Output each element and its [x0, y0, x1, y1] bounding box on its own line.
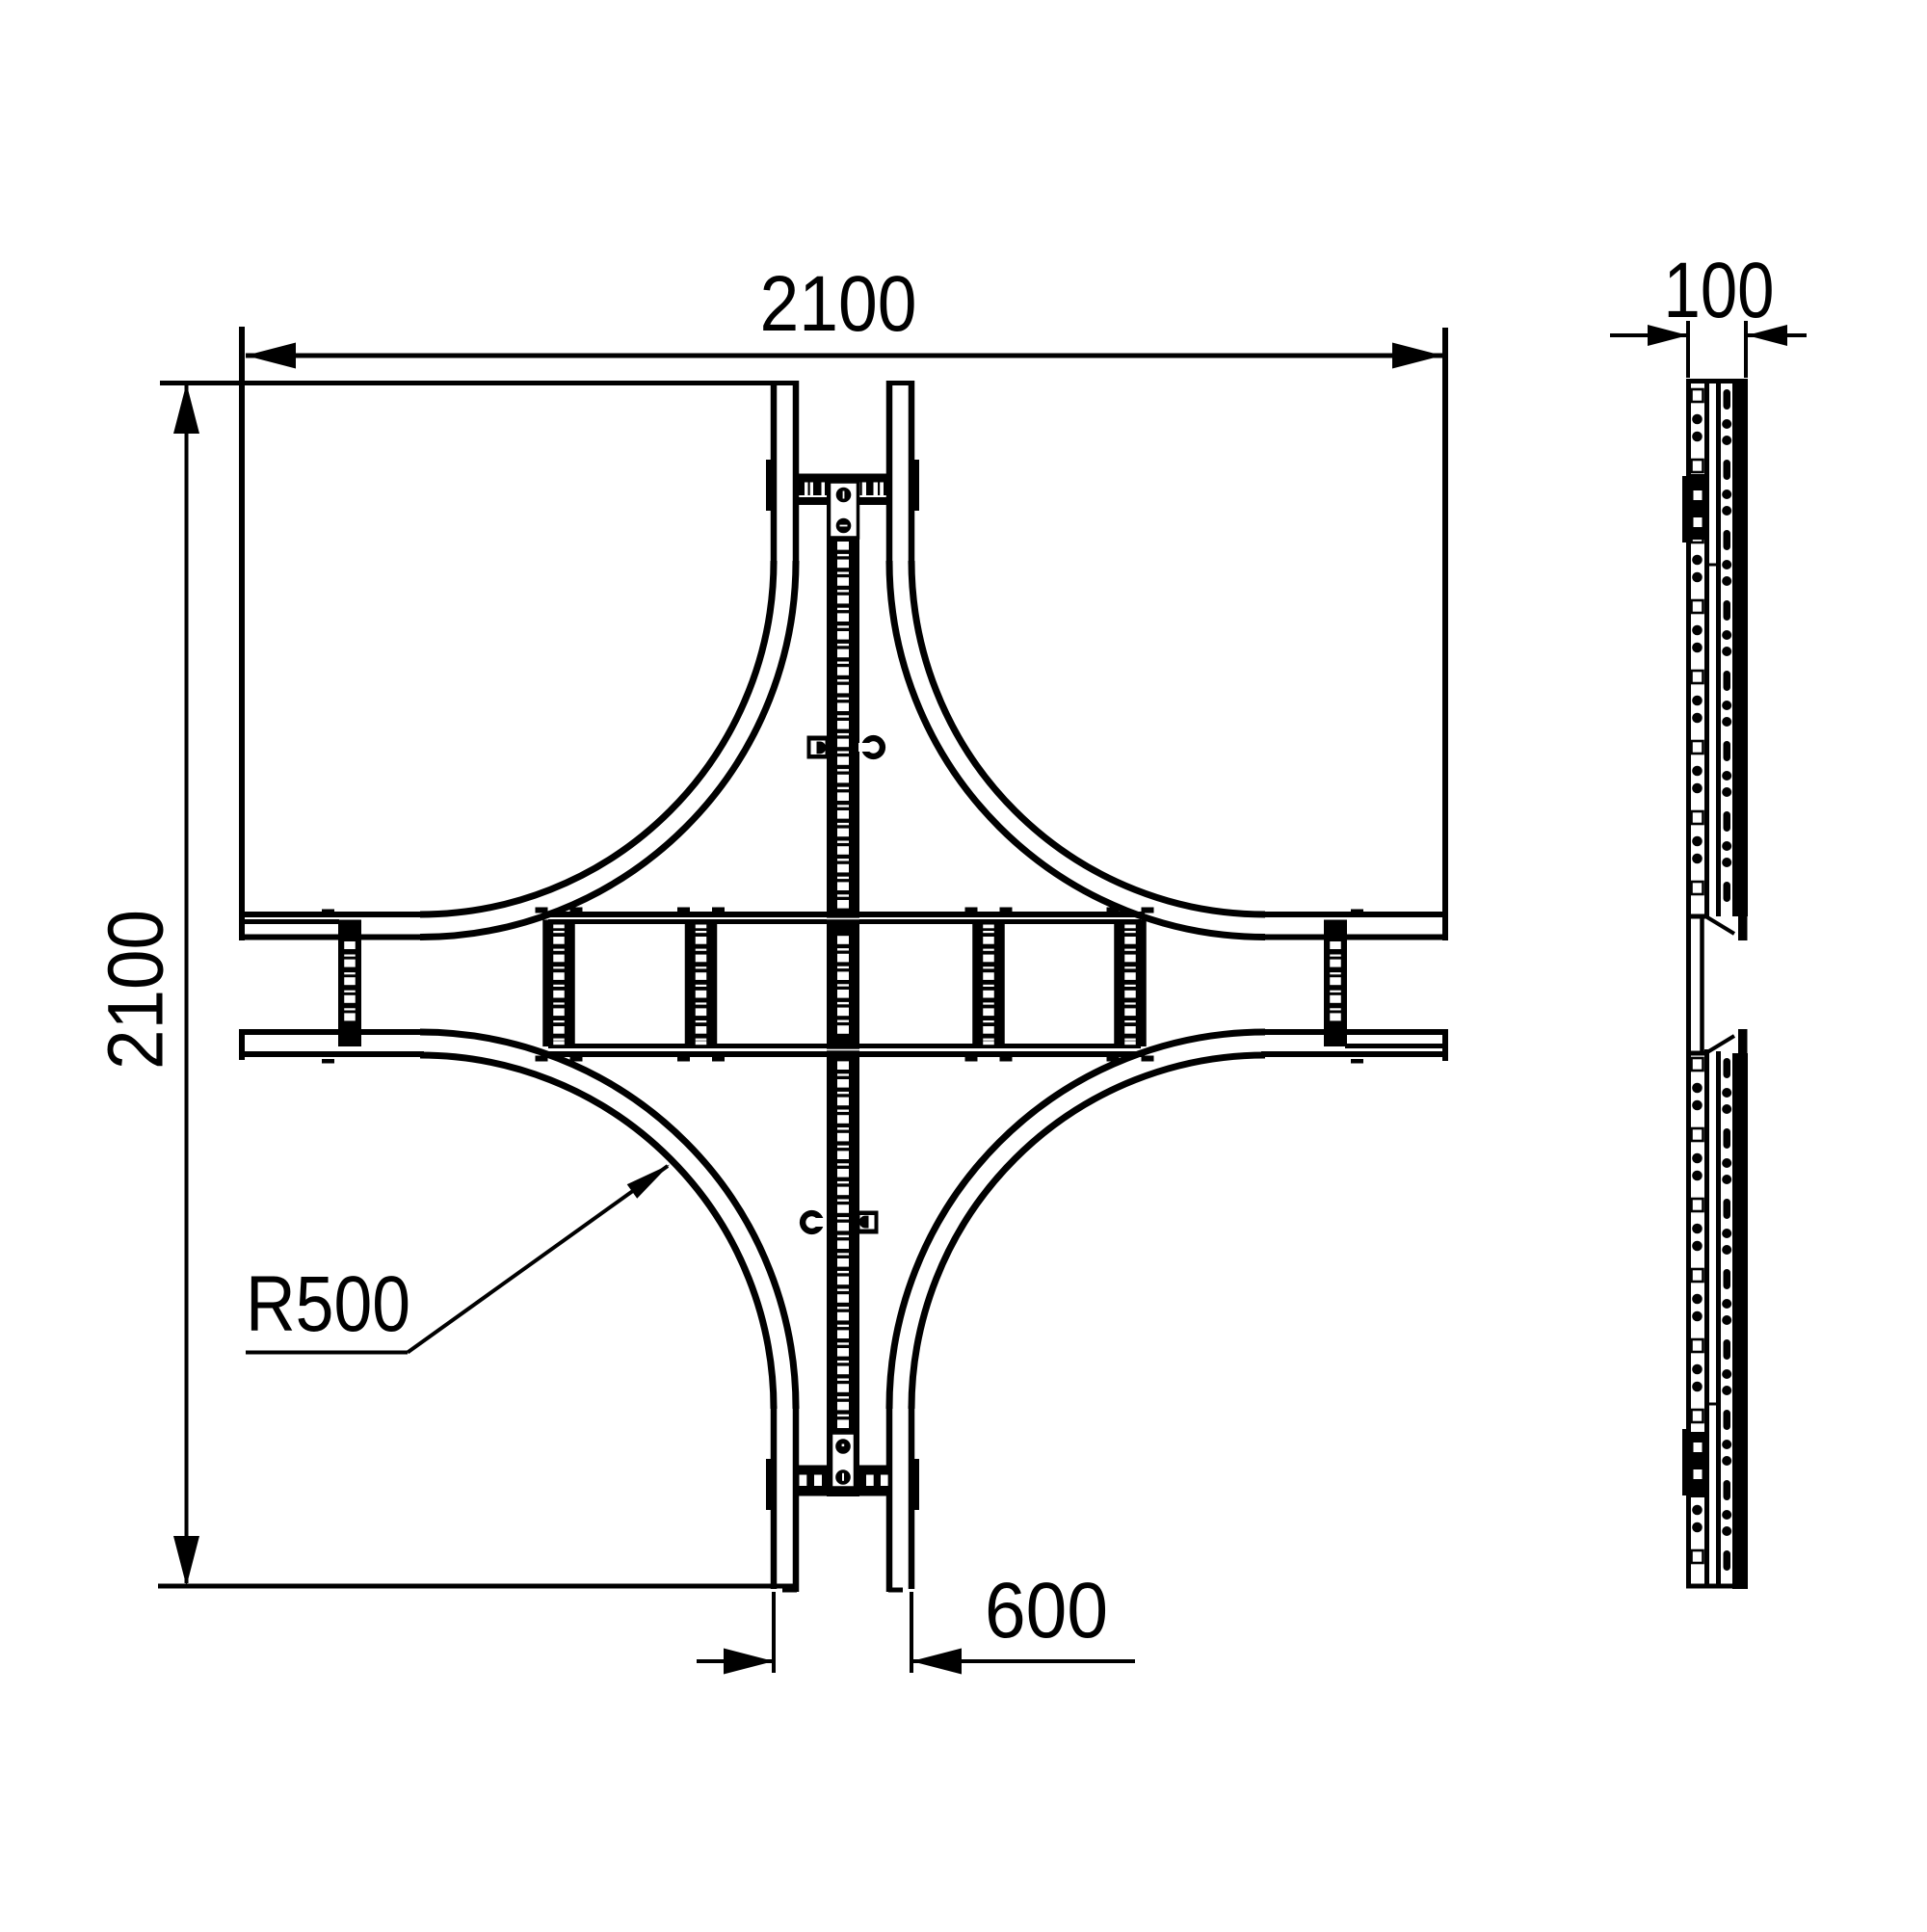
svg-text:2100: 2100: [92, 910, 180, 1070]
svg-text:100: 100: [1664, 247, 1775, 334]
svg-text:600: 600: [985, 1567, 1108, 1654]
svg-text:2100: 2100: [760, 260, 917, 348]
svg-text:R500: R500: [246, 1260, 410, 1348]
